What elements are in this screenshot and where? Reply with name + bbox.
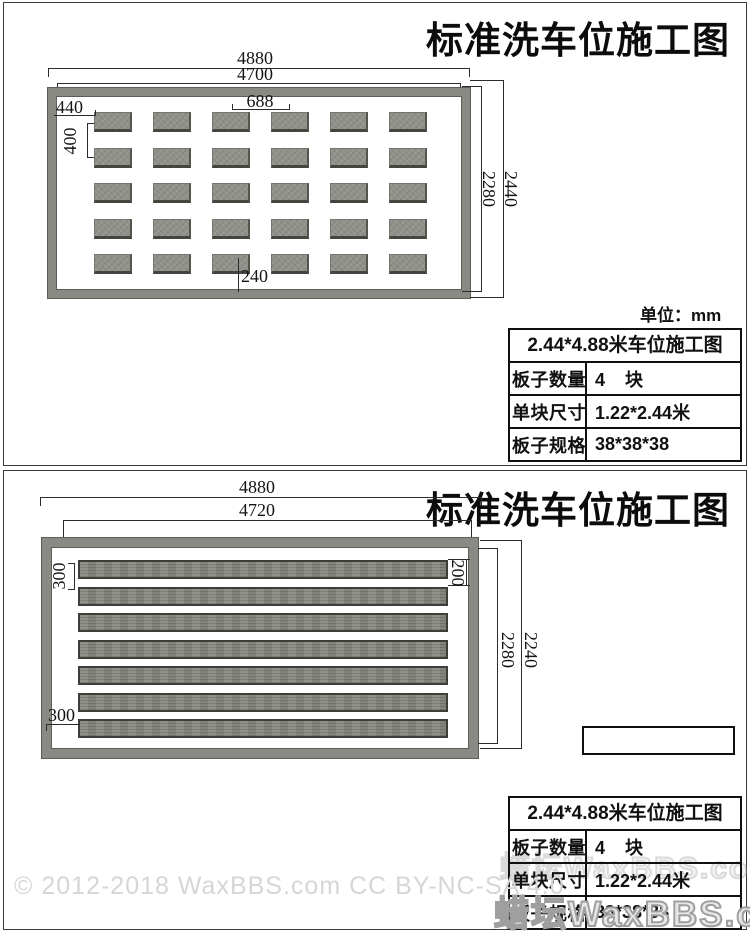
- floor-tile: [153, 183, 191, 203]
- dim-line: [54, 115, 96, 116]
- dim-inner-width-1: 4700: [225, 64, 285, 85]
- floor-slat: [78, 719, 448, 738]
- spec-table-1: 2.44*4.88米车位施工图 板子数量 4 块 单块尺寸 1.22*2.44米…: [508, 328, 742, 462]
- dim-tick: [87, 123, 94, 124]
- dim-tick: [471, 520, 472, 538]
- floor-tile: [153, 219, 191, 239]
- dim-line: [74, 563, 75, 590]
- table-row: 板子规格 38*38*38: [510, 427, 740, 460]
- floor-tile: [94, 183, 132, 203]
- floor-slat: [78, 640, 448, 659]
- dim-tick: [48, 68, 49, 77]
- spec-value: 4 块: [587, 831, 740, 862]
- dim-tick: [87, 157, 94, 158]
- dim-tick: [462, 86, 481, 87]
- floor-tile: [271, 219, 309, 239]
- floor-tile: [271, 148, 309, 168]
- floor-tile: [94, 219, 132, 239]
- floor-tile: [153, 148, 191, 168]
- floor-tile: [212, 148, 250, 168]
- dim-tick: [40, 497, 41, 506]
- floor-tile: [271, 112, 309, 132]
- spec-value: 38*38*38: [587, 429, 740, 460]
- table-row: 板子数量 4 块: [510, 361, 740, 394]
- dim-tick: [469, 68, 470, 77]
- tile-grid: [94, 112, 427, 274]
- floor-slat: [78, 666, 448, 685]
- floor-tile: [153, 112, 191, 132]
- empty-label-box: [582, 726, 735, 755]
- dim-tick: [481, 497, 482, 506]
- dim-inner-height-2: 2280: [500, 630, 516, 670]
- floor-tile: [94, 112, 132, 132]
- dim-tick: [478, 743, 497, 744]
- dim-line: [238, 258, 239, 292]
- dim-tick: [478, 548, 497, 549]
- floor-tile: [212, 219, 250, 239]
- table-row: 板子数量 4 块: [510, 829, 740, 862]
- spec-label: 板子数量: [510, 831, 587, 862]
- dim-slat-spacing-right: 200: [450, 555, 466, 591]
- floor-tile: [212, 183, 250, 203]
- floor-tile: [153, 254, 191, 274]
- spec-label: 板子规格: [510, 429, 587, 460]
- dim-line: [46, 724, 80, 725]
- spec-value: 4 块: [587, 363, 740, 394]
- dim-line: [87, 123, 88, 158]
- floor-tile: [330, 219, 368, 239]
- watermark-copyright: © 2012-2018 WaxBBS.com CC BY-NC-SA 4.0: [14, 872, 565, 901]
- dim-line: [40, 497, 482, 498]
- floor-tile: [330, 112, 368, 132]
- spec-value: 1.22*2.44米: [587, 396, 740, 427]
- dim-outer-height-1: 2440: [503, 169, 519, 209]
- floor-tile: [389, 112, 427, 132]
- dim-inner-height-1: 2280: [481, 169, 497, 209]
- dim-bottom-offset-1: 240: [241, 266, 289, 287]
- floor-tile: [94, 254, 132, 274]
- dim-tick: [462, 291, 481, 292]
- floor-tile: [94, 148, 132, 168]
- dim-line: [232, 109, 290, 110]
- spec-label: 板子数量: [510, 363, 587, 394]
- dim-line: [57, 83, 461, 84]
- floor-tile: [389, 254, 427, 274]
- floor-tile: [389, 148, 427, 168]
- floor-slat: [78, 693, 448, 712]
- dim-slat-spacing-left: 300: [51, 556, 67, 596]
- dim-tick: [470, 297, 503, 298]
- floor-tile: [330, 183, 368, 203]
- dim-tick: [480, 540, 521, 541]
- floor-slat: [78, 560, 448, 579]
- dim-bottom-offset-2: 300: [48, 705, 88, 726]
- dim-outer-height-2: 2240: [523, 630, 539, 670]
- dim-tick: [95, 110, 96, 116]
- spec-table-header: 2.44*4.88米车位施工图: [510, 330, 740, 361]
- dim-inner-width-2: 4720: [227, 500, 287, 521]
- floor-slat: [78, 613, 448, 632]
- page: 标准洗车位施工图 4880 4700 688 440 400 240 2280 …: [0, 0, 750, 936]
- floor-tile: [330, 148, 368, 168]
- spec-table-header: 2.44*4.88米车位施工图: [510, 798, 740, 829]
- dim-tick: [46, 724, 47, 731]
- dim-tick: [480, 748, 521, 749]
- table-row: 单块尺寸 1.22*2.44米: [510, 394, 740, 427]
- floor-tile: [271, 183, 309, 203]
- dim-tick: [63, 520, 64, 538]
- dim-tick: [232, 104, 233, 110]
- spec-label: 单块尺寸: [510, 396, 587, 427]
- floor-tile: [389, 183, 427, 203]
- floor-tile: [389, 219, 427, 239]
- dim-row-spacing: 400: [62, 121, 78, 161]
- slat-group: [78, 560, 448, 738]
- dim-tick: [470, 80, 503, 81]
- panel1-title: 标准洗车位施工图: [426, 10, 730, 64]
- dim-outer-width-2: 4880: [227, 477, 287, 498]
- unit-label: 单位：mm: [640, 301, 721, 326]
- dim-tick: [289, 104, 290, 110]
- watermark-site: 蜡坛WaxBBS.com: [494, 886, 750, 936]
- floor-tile: [330, 254, 368, 274]
- floor-tile: [212, 112, 250, 132]
- floor-slat: [78, 587, 448, 606]
- dim-line: [63, 520, 472, 521]
